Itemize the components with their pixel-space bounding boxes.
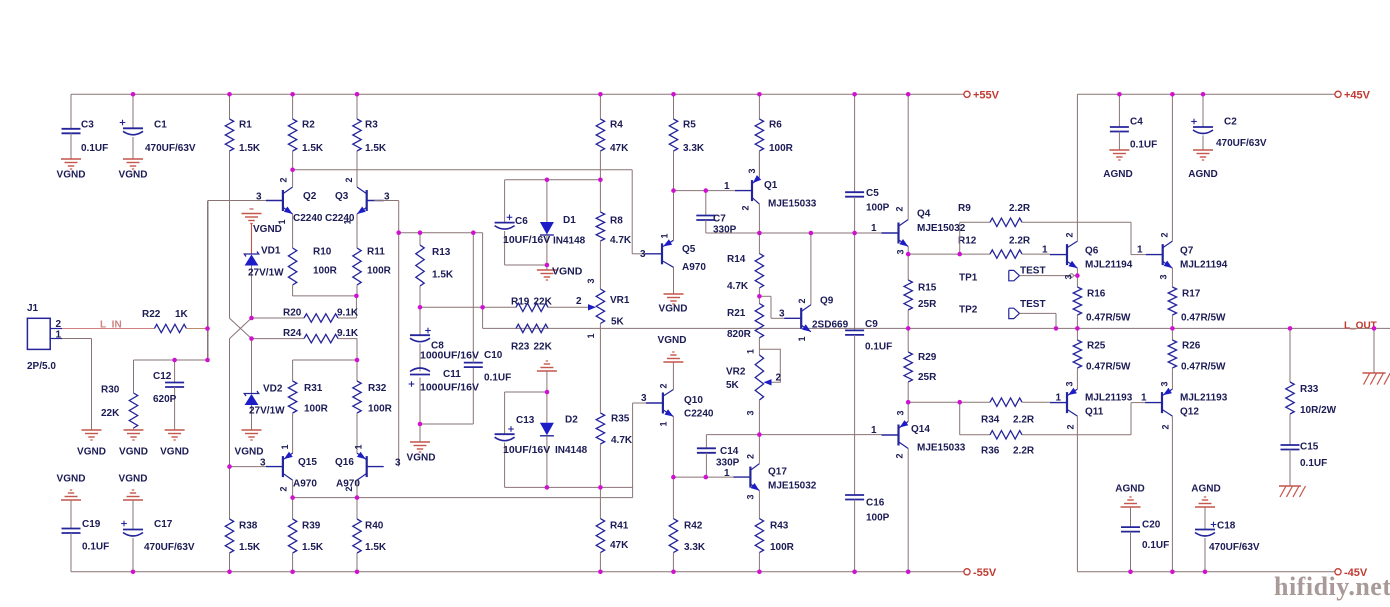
svg-text:D1: D1 bbox=[563, 215, 576, 226]
svg-text:TEST: TEST bbox=[1020, 266, 1046, 277]
svg-text:IN4148: IN4148 bbox=[555, 445, 588, 456]
svg-text:0.1UF: 0.1UF bbox=[81, 143, 108, 154]
svg-text:R2: R2 bbox=[302, 120, 315, 131]
svg-text:9.1K: 9.1K bbox=[337, 308, 359, 319]
svg-text:1: 1 bbox=[871, 223, 877, 234]
svg-text:Q14: Q14 bbox=[911, 424, 930, 435]
svg-text:R19: R19 bbox=[511, 297, 530, 308]
svg-text:C2: C2 bbox=[1224, 117, 1237, 128]
svg-text:1: 1 bbox=[1042, 245, 1048, 256]
svg-text:1: 1 bbox=[1137, 245, 1143, 256]
svg-text:47K: 47K bbox=[610, 143, 629, 154]
svg-text:2: 2 bbox=[741, 205, 751, 210]
svg-text:-55V: -55V bbox=[973, 567, 997, 579]
svg-text:R29: R29 bbox=[918, 352, 937, 363]
svg-text:+45V: +45V bbox=[1344, 90, 1371, 102]
svg-text:330P: 330P bbox=[713, 225, 737, 236]
svg-text:hifidiy.net: hifidiy.net bbox=[1274, 572, 1390, 601]
svg-text:2: 2 bbox=[1065, 232, 1075, 237]
svg-text:C4: C4 bbox=[1130, 117, 1143, 128]
svg-text:0.1UF: 0.1UF bbox=[82, 542, 109, 553]
svg-text:620P: 620P bbox=[153, 394, 177, 405]
svg-text:VGND: VGND bbox=[119, 170, 148, 181]
svg-text:R4: R4 bbox=[610, 120, 623, 131]
svg-text:R23: R23 bbox=[511, 342, 530, 353]
svg-text:Q3: Q3 bbox=[335, 191, 349, 202]
svg-text:1: 1 bbox=[746, 349, 756, 354]
svg-text:100R: 100R bbox=[304, 404, 329, 415]
svg-text:C11: C11 bbox=[443, 369, 461, 380]
svg-text:VGND: VGND bbox=[119, 474, 148, 485]
svg-text:3: 3 bbox=[640, 249, 646, 260]
svg-text:100P: 100P bbox=[866, 203, 890, 214]
svg-text:1: 1 bbox=[354, 444, 364, 449]
svg-text:100P: 100P bbox=[866, 513, 890, 524]
svg-text:2: 2 bbox=[746, 454, 756, 459]
svg-text:Q12: Q12 bbox=[1180, 407, 1199, 418]
svg-text:R8: R8 bbox=[610, 216, 623, 227]
svg-text:1000UF/16V: 1000UF/16V bbox=[420, 350, 479, 362]
svg-text:1: 1 bbox=[724, 468, 730, 479]
svg-text:Q11: Q11 bbox=[1085, 407, 1104, 418]
svg-text:Q2: Q2 bbox=[303, 191, 317, 202]
svg-text:470UF/63V: 470UF/63V bbox=[1216, 138, 1267, 149]
svg-text:470UF/63V: 470UF/63V bbox=[144, 542, 195, 553]
svg-text:VD1: VD1 bbox=[261, 246, 281, 257]
svg-text:L_OUT: L_OUT bbox=[1344, 321, 1377, 332]
svg-text:10UF/16V: 10UF/16V bbox=[503, 234, 550, 246]
svg-text:2: 2 bbox=[1160, 232, 1170, 237]
svg-text:2P/5.0: 2P/5.0 bbox=[27, 361, 56, 372]
svg-text:2: 2 bbox=[659, 383, 669, 388]
svg-text:R39: R39 bbox=[302, 520, 321, 531]
svg-text:VGND: VGND bbox=[658, 335, 687, 346]
svg-text:J1: J1 bbox=[27, 303, 39, 314]
svg-text:27V/1W: 27V/1W bbox=[248, 268, 284, 279]
svg-text:22K: 22K bbox=[534, 342, 553, 353]
svg-text:R14: R14 bbox=[727, 254, 746, 265]
svg-text:MJL21193: MJL21193 bbox=[1180, 393, 1228, 404]
svg-text:VGND: VGND bbox=[235, 447, 264, 458]
svg-text:A970: A970 bbox=[682, 262, 706, 273]
svg-text:25R: 25R bbox=[918, 299, 937, 310]
svg-text:VR1: VR1 bbox=[610, 295, 630, 306]
svg-text:22K: 22K bbox=[101, 408, 120, 419]
svg-text:R30: R30 bbox=[101, 385, 120, 396]
svg-text:9.1K: 9.1K bbox=[337, 328, 359, 339]
svg-text:3: 3 bbox=[1064, 274, 1074, 279]
svg-text:R20: R20 bbox=[283, 308, 302, 319]
svg-text:3: 3 bbox=[641, 393, 647, 404]
svg-text:470UF/63V: 470UF/63V bbox=[145, 143, 196, 154]
svg-text:Q4: Q4 bbox=[917, 209, 931, 220]
svg-text:C19: C19 bbox=[82, 519, 101, 530]
svg-text:AGND: AGND bbox=[1191, 484, 1220, 495]
svg-text:25R: 25R bbox=[918, 372, 937, 383]
svg-text:R35: R35 bbox=[611, 414, 630, 425]
svg-text:Q16: Q16 bbox=[335, 457, 354, 468]
svg-text:R22: R22 bbox=[142, 309, 161, 320]
svg-text:1.5K: 1.5K bbox=[302, 143, 324, 154]
svg-text:0.47R/5W: 0.47R/5W bbox=[1181, 313, 1226, 324]
svg-text:TEST: TEST bbox=[1020, 299, 1046, 310]
svg-text:MJE15032: MJE15032 bbox=[768, 481, 817, 492]
svg-text:1K: 1K bbox=[175, 309, 189, 320]
svg-text:TP1: TP1 bbox=[959, 273, 978, 284]
svg-text:100R: 100R bbox=[769, 143, 794, 154]
svg-text:1000UF/16V: 1000UF/16V bbox=[420, 382, 479, 394]
svg-text:VD2: VD2 bbox=[263, 384, 283, 395]
svg-text:2: 2 bbox=[576, 296, 582, 307]
svg-text:VGND: VGND bbox=[57, 474, 86, 485]
svg-text:Q6: Q6 bbox=[1085, 246, 1099, 257]
svg-text:4.7K: 4.7K bbox=[727, 281, 749, 292]
svg-text:1: 1 bbox=[659, 421, 669, 426]
svg-text:100R: 100R bbox=[368, 404, 393, 415]
svg-text:Q1: Q1 bbox=[764, 180, 778, 191]
svg-text:2: 2 bbox=[895, 206, 905, 211]
svg-text:5K: 5K bbox=[611, 317, 625, 328]
svg-text:Q17: Q17 bbox=[768, 467, 787, 478]
svg-text:470UF/63V: 470UF/63V bbox=[1209, 542, 1260, 553]
svg-text:TP2: TP2 bbox=[959, 305, 978, 316]
svg-text:2SD669: 2SD669 bbox=[812, 320, 849, 331]
svg-text:1.5K: 1.5K bbox=[239, 143, 261, 154]
svg-text:A970: A970 bbox=[293, 479, 317, 490]
svg-text:3: 3 bbox=[896, 410, 906, 415]
svg-text:R17: R17 bbox=[1182, 289, 1201, 300]
svg-text:R13: R13 bbox=[432, 247, 451, 258]
svg-text:R36: R36 bbox=[981, 446, 1000, 457]
svg-text:C7: C7 bbox=[713, 214, 726, 225]
svg-text:C6: C6 bbox=[515, 216, 528, 227]
svg-text:1.5K: 1.5K bbox=[365, 542, 387, 553]
svg-text:R11: R11 bbox=[367, 247, 385, 258]
svg-text:1.5K: 1.5K bbox=[239, 542, 261, 553]
svg-text:R21: R21 bbox=[727, 308, 746, 319]
svg-text:Q5: Q5 bbox=[682, 244, 696, 255]
svg-text:3: 3 bbox=[586, 278, 596, 283]
svg-text:3: 3 bbox=[1065, 381, 1075, 386]
svg-text:R43: R43 bbox=[770, 520, 789, 531]
svg-text:C1: C1 bbox=[154, 120, 167, 131]
svg-text:Q9: Q9 bbox=[820, 296, 834, 307]
svg-text:1.5K: 1.5K bbox=[302, 542, 324, 553]
svg-text:IN4148: IN4148 bbox=[553, 236, 586, 247]
svg-text:C12: C12 bbox=[153, 371, 172, 382]
svg-text:C16: C16 bbox=[866, 498, 885, 509]
svg-text:1: 1 bbox=[586, 333, 596, 338]
svg-text:R3: R3 bbox=[365, 120, 378, 131]
svg-text:1: 1 bbox=[343, 219, 353, 224]
svg-text:4.7K: 4.7K bbox=[611, 435, 633, 446]
svg-text:2: 2 bbox=[776, 373, 782, 384]
svg-text:100R: 100R bbox=[313, 266, 338, 277]
svg-text:VGND: VGND bbox=[552, 266, 583, 278]
svg-text:R33: R33 bbox=[1300, 384, 1319, 395]
svg-text:0.1UF: 0.1UF bbox=[484, 373, 511, 384]
svg-text:0.47R/5W: 0.47R/5W bbox=[1086, 362, 1131, 373]
svg-text:L_IN: L_IN bbox=[100, 319, 122, 330]
svg-text:VR2: VR2 bbox=[726, 367, 746, 378]
svg-text:R9: R9 bbox=[958, 203, 971, 214]
svg-text:47K: 47K bbox=[610, 540, 629, 551]
svg-text:0.47R/5W: 0.47R/5W bbox=[1086, 313, 1131, 324]
svg-text:Q7: Q7 bbox=[1180, 246, 1194, 257]
svg-text:3: 3 bbox=[779, 309, 785, 320]
svg-text:AGND: AGND bbox=[1103, 169, 1132, 180]
svg-text:1: 1 bbox=[724, 181, 730, 192]
svg-text:2.2R: 2.2R bbox=[1013, 415, 1035, 426]
svg-text:0.1UF: 0.1UF bbox=[1130, 140, 1157, 151]
svg-text:3.3K: 3.3K bbox=[683, 143, 705, 154]
svg-text:5K: 5K bbox=[726, 380, 740, 391]
svg-text:2.2R: 2.2R bbox=[1009, 236, 1031, 247]
svg-text:1: 1 bbox=[1141, 393, 1147, 404]
svg-text:Q15: Q15 bbox=[298, 457, 317, 468]
svg-text:10R/2W: 10R/2W bbox=[1300, 405, 1337, 416]
svg-text:R12: R12 bbox=[958, 236, 977, 247]
svg-text:C14: C14 bbox=[720, 446, 739, 457]
svg-text:MJL21194: MJL21194 bbox=[1085, 260, 1133, 271]
svg-text:R6: R6 bbox=[769, 120, 782, 131]
svg-text:27V/1W: 27V/1W bbox=[249, 406, 285, 417]
svg-text:C13: C13 bbox=[516, 415, 535, 426]
svg-text:3: 3 bbox=[395, 458, 401, 469]
svg-text:R25: R25 bbox=[1087, 341, 1106, 352]
svg-text:0.47R/5W: 0.47R/5W bbox=[1181, 362, 1226, 373]
svg-text:MJL21193: MJL21193 bbox=[1085, 393, 1133, 404]
svg-text:820R: 820R bbox=[727, 329, 752, 340]
svg-text:1.5K: 1.5K bbox=[365, 143, 387, 154]
svg-text:2: 2 bbox=[279, 177, 289, 182]
svg-text:C9: C9 bbox=[865, 319, 878, 330]
svg-text:3: 3 bbox=[896, 249, 906, 254]
svg-text:0.1UF: 0.1UF bbox=[865, 342, 892, 353]
svg-text:VGND: VGND bbox=[253, 224, 282, 235]
svg-text:100R: 100R bbox=[770, 542, 795, 553]
svg-text:VGND: VGND bbox=[119, 447, 148, 458]
svg-text:R40: R40 bbox=[365, 520, 384, 531]
svg-text:AGND: AGND bbox=[1188, 169, 1217, 180]
svg-text:Q10: Q10 bbox=[684, 395, 703, 406]
svg-text:R31: R31 bbox=[304, 383, 323, 394]
svg-text:R42: R42 bbox=[684, 520, 703, 531]
svg-text:C5: C5 bbox=[866, 188, 879, 199]
svg-text:R16: R16 bbox=[1087, 289, 1106, 300]
svg-text:MJE15033: MJE15033 bbox=[917, 443, 966, 454]
svg-text:R24: R24 bbox=[283, 328, 302, 339]
svg-text:22K: 22K bbox=[534, 297, 553, 308]
svg-text:1.5K: 1.5K bbox=[432, 270, 454, 281]
svg-text:MJL21194: MJL21194 bbox=[1180, 260, 1228, 271]
svg-text:2: 2 bbox=[895, 453, 905, 458]
svg-text:3: 3 bbox=[1160, 381, 1170, 386]
svg-text:R5: R5 bbox=[683, 120, 696, 131]
svg-text:AGND: AGND bbox=[1115, 484, 1144, 495]
svg-text:2: 2 bbox=[797, 298, 807, 303]
svg-text:R1: R1 bbox=[239, 120, 252, 131]
svg-text:2: 2 bbox=[1161, 424, 1171, 429]
svg-text:3: 3 bbox=[746, 410, 756, 415]
svg-text:+55V: +55V bbox=[973, 90, 1000, 102]
svg-text:VGND: VGND bbox=[160, 447, 189, 458]
svg-text:VGND: VGND bbox=[57, 170, 86, 181]
svg-text:R10: R10 bbox=[313, 247, 332, 258]
svg-text:3.3K: 3.3K bbox=[684, 542, 706, 553]
svg-text:1: 1 bbox=[280, 444, 290, 449]
svg-text:2.2R: 2.2R bbox=[1009, 203, 1031, 214]
svg-text:2.2R: 2.2R bbox=[1013, 446, 1035, 457]
svg-text:100R: 100R bbox=[367, 266, 392, 277]
svg-text:3: 3 bbox=[746, 494, 756, 499]
svg-text:1: 1 bbox=[660, 233, 670, 238]
svg-text:C2240: C2240 bbox=[684, 409, 714, 420]
svg-text:330P: 330P bbox=[716, 458, 740, 469]
svg-text:C20: C20 bbox=[1142, 520, 1161, 531]
svg-text:R34: R34 bbox=[981, 415, 1000, 426]
svg-text:C18: C18 bbox=[1217, 521, 1236, 532]
svg-text:D2: D2 bbox=[565, 415, 578, 426]
svg-text:R41: R41 bbox=[610, 520, 629, 531]
svg-text:3: 3 bbox=[1159, 274, 1169, 279]
svg-text:R26: R26 bbox=[1182, 341, 1201, 352]
svg-text:VGND: VGND bbox=[77, 447, 106, 458]
svg-text:1: 1 bbox=[797, 336, 807, 341]
svg-text:R38: R38 bbox=[239, 520, 258, 531]
svg-text:VGND: VGND bbox=[659, 304, 688, 315]
svg-text:0.1UF: 0.1UF bbox=[1142, 540, 1169, 551]
svg-text:MJE15032: MJE15032 bbox=[917, 223, 966, 234]
svg-text:0.1UF: 0.1UF bbox=[1300, 458, 1327, 469]
svg-text:2: 2 bbox=[344, 177, 354, 182]
svg-text:3: 3 bbox=[747, 168, 757, 173]
svg-text:1: 1 bbox=[1056, 393, 1062, 404]
svg-text:2: 2 bbox=[344, 486, 354, 491]
svg-text:2: 2 bbox=[1066, 424, 1076, 429]
svg-text:MJE15033: MJE15033 bbox=[768, 199, 817, 210]
svg-text:VGND: VGND bbox=[407, 453, 436, 464]
svg-text:4.7K: 4.7K bbox=[610, 235, 632, 246]
svg-text:C3: C3 bbox=[81, 120, 94, 131]
svg-text:C10: C10 bbox=[484, 350, 503, 361]
svg-text:R32: R32 bbox=[368, 383, 387, 394]
svg-text:2: 2 bbox=[279, 486, 289, 491]
svg-text:10UF/16V: 10UF/16V bbox=[503, 444, 550, 456]
svg-text:R15: R15 bbox=[918, 283, 937, 294]
svg-text:C15: C15 bbox=[1300, 442, 1319, 453]
svg-text:C2240: C2240 bbox=[293, 213, 323, 224]
svg-text:C17: C17 bbox=[154, 519, 173, 530]
